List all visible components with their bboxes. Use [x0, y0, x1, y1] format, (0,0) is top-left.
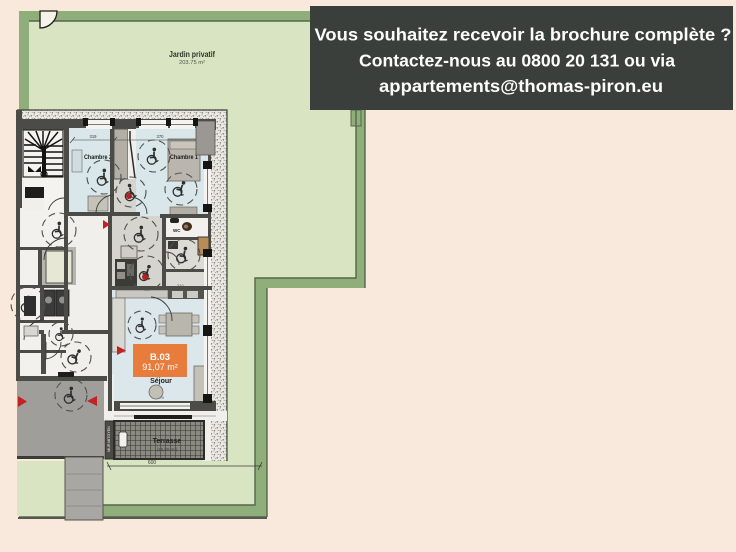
svg-text:370: 370 [157, 134, 165, 139]
svg-text:91,07 m²: 91,07 m² [142, 362, 178, 372]
svg-text:Séjour: Séjour [150, 378, 172, 385]
svg-text:600: 600 [148, 460, 157, 466]
svg-text:319: 319 [90, 134, 98, 139]
svg-text:Terrasse: Terrasse [153, 438, 182, 445]
svg-text:(15,00 m²): (15,00 m²) [157, 447, 178, 452]
svg-text:Jardin privatif: Jardin privatif [169, 50, 215, 59]
svg-text:203.75 m²: 203.75 m² [179, 60, 205, 66]
svg-text:Chambre 1: Chambre 1 [170, 154, 198, 161]
svg-text:MUR MITOYEN: MUR MITOYEN [107, 426, 111, 452]
svg-text:appartements@thomas-piron.eu: appartements@thomas-piron.eu [379, 76, 663, 96]
svg-text:Contactez-nous au 0800 20 131: Contactez-nous au 0800 20 131 ou via [359, 51, 675, 71]
svg-text:Vous souhaitez recevoir la bro: Vous souhaitez recevoir la brochure comp… [315, 25, 732, 45]
svg-text:WC: WC [173, 228, 181, 233]
